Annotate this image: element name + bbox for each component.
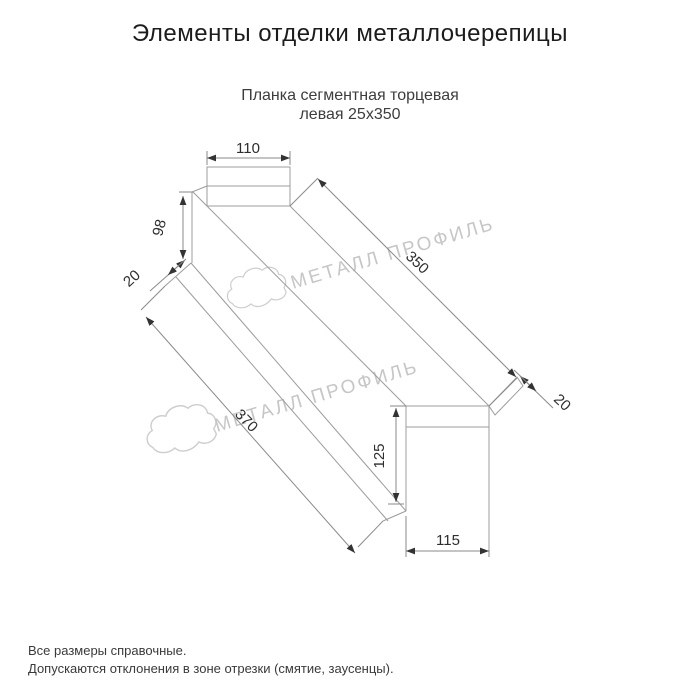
dim-left-hem: 20 <box>120 259 186 291</box>
dim-left-hem-label: 20 <box>120 267 144 291</box>
dim-left-height: 98 <box>149 192 193 259</box>
footer-note-1: Все размеры справочные. <box>28 642 394 660</box>
dim-bottom-width: 115 <box>406 516 489 557</box>
dim-right-hem-label: 20 <box>550 391 574 415</box>
dim-right-height: 125 <box>371 406 406 504</box>
dim-bottom-width-label: 115 <box>436 532 460 549</box>
dim-right-hem: 20 <box>514 370 574 415</box>
dim-top-width: 110 <box>207 140 290 165</box>
dim-right-height-label: 125 <box>371 443 388 468</box>
dim-left-height-label: 98 <box>149 218 170 239</box>
dim-top-width-label: 110 <box>236 140 260 157</box>
technical-drawing: МЕТАЛЛ ПРОФИЛЬ МЕТАЛЛ ПРОФИЛЬ <box>0 0 700 700</box>
footer-note-2: Допускаются отклонения в зоне отрезки (с… <box>28 660 394 678</box>
catalog-page: Элементы отделки металлочерепицы Планка … <box>0 0 700 700</box>
footer-notes: Все размеры справочные. Допускаются откл… <box>28 642 394 678</box>
